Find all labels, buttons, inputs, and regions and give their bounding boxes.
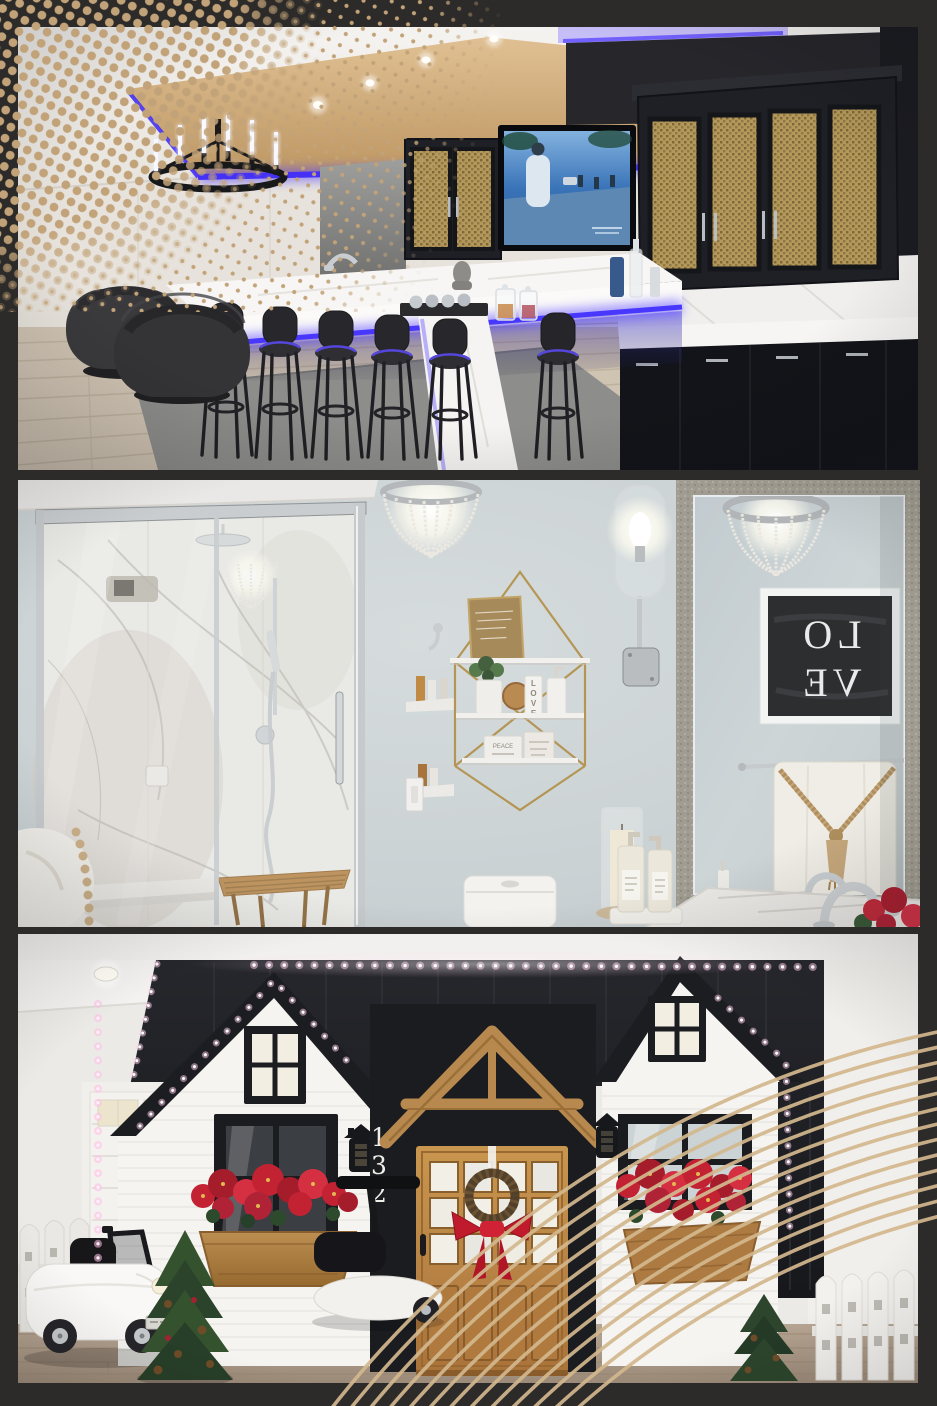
bathroom-scene: L O V E PEACE <box>18 480 920 927</box>
photo-christmas-playhouse: 1 3 2 <box>18 934 918 1383</box>
playhouse-scene: 1 3 2 <box>18 934 918 1383</box>
basement-bar-scene <box>18 27 918 470</box>
photo-basement-bar <box>18 27 918 470</box>
photo-collage: L O V E PEACE <box>0 0 937 1406</box>
photo-spa-bathroom: L O V E PEACE <box>18 480 920 927</box>
